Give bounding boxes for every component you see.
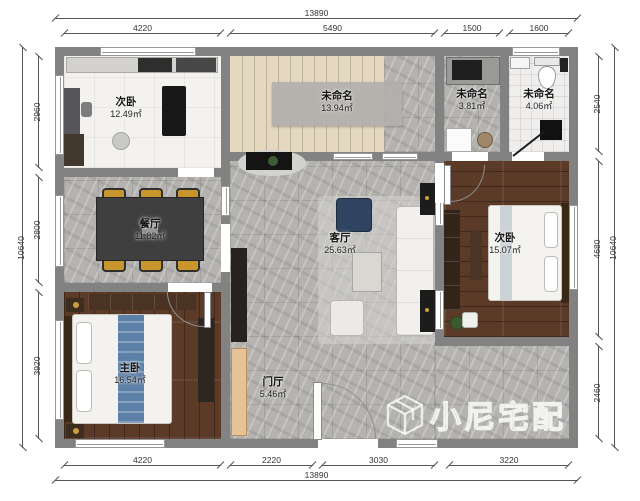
window-top-bathroom[interactable] (512, 47, 560, 56)
dim-value: 4220 (133, 456, 152, 465)
window-bottom-master[interactable] (75, 439, 165, 448)
radiator-dining-wall (221, 186, 230, 216)
room-name: 门厅 (233, 376, 313, 389)
kitchen-cabinet[interactable] (446, 128, 472, 152)
dim-top-seg4: 1600 (509, 23, 569, 34)
table-lamp (73, 428, 79, 434)
watermark: 小尼宅配 (386, 392, 566, 437)
bed-headboard (561, 203, 569, 303)
bed-headboard (64, 316, 72, 422)
room-area: 15.07㎡ (465, 245, 545, 256)
room-area: 11.82㎡ (110, 231, 190, 242)
room-name: 未命名 (297, 90, 377, 103)
room-area: 5.46㎡ (233, 389, 313, 400)
room-area: 12.49㎡ (86, 109, 166, 120)
console-plant[interactable] (268, 156, 278, 166)
dim-value: 2460 (593, 383, 602, 402)
dim-top-seg3: 1500 (444, 23, 500, 34)
wardrobe[interactable] (444, 210, 460, 310)
dim-value: 13890 (305, 9, 329, 18)
bedroom-chair[interactable] (462, 312, 478, 328)
room-label-stairwell[interactable]: 未命名 13.94㎡ (297, 90, 377, 114)
room-area: 4.06㎡ (499, 101, 579, 112)
room-label-living[interactable]: 客厅 25.63㎡ (300, 232, 380, 256)
room-name: 客厅 (300, 232, 380, 245)
dim-value: 1600 (530, 24, 549, 33)
floor-fan[interactable] (112, 132, 130, 150)
window-bottom-corridor[interactable] (396, 439, 438, 448)
dim-value: 4680 (593, 240, 602, 259)
room-label-dining[interactable]: 餐厅 11.82㎡ (110, 218, 190, 242)
dim-right-seg3: 2460 (598, 346, 609, 439)
dim-value: 3220 (500, 456, 519, 465)
room-area: 25.63㎡ (300, 245, 380, 256)
window-right-bedroom[interactable] (569, 205, 578, 290)
dim-bottom-seg2: 2220 (230, 455, 313, 466)
room-area: 16.54㎡ (90, 375, 170, 386)
toilet-tank[interactable] (534, 57, 560, 66)
dim-bottom-total: 13890 (55, 470, 578, 481)
cooktop[interactable] (452, 60, 482, 80)
room-label-bedroom-topleft[interactable]: 次卧 12.49㎡ (86, 96, 166, 120)
wardrobe-grey-unit[interactable] (176, 58, 216, 72)
wall-under-bedroom-right (435, 337, 578, 346)
dim-value: 1500 (463, 24, 482, 33)
door-opening-master[interactable] (168, 283, 212, 292)
door-opening-bedroom-right[interactable] (435, 163, 444, 203)
dim-value: 2800 (33, 221, 42, 240)
door-leaf-bedroom-right[interactable] (444, 165, 451, 205)
dim-value: 2540 (593, 95, 602, 114)
desk[interactable] (64, 88, 80, 134)
tv-cabinet[interactable] (231, 248, 247, 342)
dim-left-seg2: 2800 (38, 177, 49, 283)
dim-top-total: 13890 (55, 8, 578, 19)
watermark-text: 小尼宅配 (430, 392, 566, 437)
kitchen-sink[interactable] (477, 132, 493, 148)
floorplan-canvas: 次卧 12.49㎡ 未命名 13.94㎡ 未命名 3.81㎡ 未命名 4.06㎡… (0, 0, 640, 501)
dim-value: 4220 (133, 24, 152, 33)
room-label-bedroom-right[interactable]: 次卧 15.07㎡ (465, 232, 545, 256)
room-name: 次卧 (86, 96, 166, 109)
entrance-opening[interactable] (318, 439, 378, 448)
railing-under-stairs (333, 153, 373, 160)
pillow (76, 322, 92, 364)
armchair[interactable] (330, 300, 364, 336)
dim-bottom-seg1: 4220 (64, 455, 221, 466)
low-cabinet[interactable] (64, 134, 84, 166)
dim-top-seg1: 4220 (64, 23, 221, 34)
room-name: 餐厅 (110, 218, 190, 231)
window-left-dining[interactable] (55, 195, 64, 267)
room-name: 次卧 (465, 232, 545, 245)
dim-value: 10640 (609, 236, 618, 260)
pillow (544, 256, 558, 292)
door-opening-kitchen[interactable] (452, 152, 488, 161)
room-label-entry[interactable]: 门厅 5.46㎡ (233, 376, 313, 400)
door-opening-bedroom-topleft[interactable] (178, 168, 214, 177)
shower-fixture[interactable] (560, 58, 568, 72)
railing-under-stairs (382, 153, 418, 160)
dim-left-seg1: 2960 (38, 56, 49, 168)
opening-dining-living[interactable] (221, 224, 230, 272)
dim-bottom-seg4: 3220 (449, 455, 569, 466)
window-left-master[interactable] (55, 320, 64, 420)
pillow (544, 212, 558, 248)
room-label-master[interactable]: 主卧 16.54㎡ (90, 362, 170, 386)
cabinet-knob (425, 308, 429, 312)
brand-cube-icon (386, 394, 424, 436)
table-lamp (73, 302, 79, 308)
dim-value: 2220 (262, 456, 281, 465)
wall-master-entry (221, 283, 230, 448)
dim-value: 3030 (369, 456, 388, 465)
bathroom-sink[interactable] (510, 57, 530, 69)
dim-value: 3920 (33, 356, 42, 375)
tv-bench[interactable] (198, 318, 214, 402)
dim-left-seg3: 3920 (38, 292, 49, 439)
wall-bedroom-stairs (221, 47, 230, 177)
cabinet-knob (425, 196, 429, 200)
radiator-living-wall (435, 290, 444, 330)
dim-value: 2960 (33, 103, 42, 122)
dim-value: 13890 (305, 471, 329, 480)
dim-bottom-seg3: 3030 (322, 455, 435, 466)
dim-top-seg2: 5490 (230, 23, 435, 34)
dim-right-total: 10640 (614, 47, 625, 448)
room-label-bathroom[interactable]: 未命名 4.06㎡ (499, 88, 579, 112)
door-leaf-master[interactable] (204, 292, 211, 328)
dim-value: 5490 (323, 24, 342, 33)
room-area: 13.94㎡ (297, 103, 377, 114)
window-left-bedroom[interactable] (55, 75, 64, 155)
coffee-table[interactable] (352, 252, 382, 292)
window-top-bedroom[interactable] (100, 47, 196, 56)
lounge-chair[interactable] (336, 198, 372, 232)
wardrobe-dark-unit[interactable] (138, 58, 172, 72)
room-name: 主卧 (90, 362, 170, 375)
entrance-door-leaf[interactable] (313, 382, 322, 440)
dim-value: 10640 (17, 236, 26, 260)
dim-right-seg1: 2540 (598, 56, 609, 152)
room-name: 未命名 (499, 88, 579, 101)
